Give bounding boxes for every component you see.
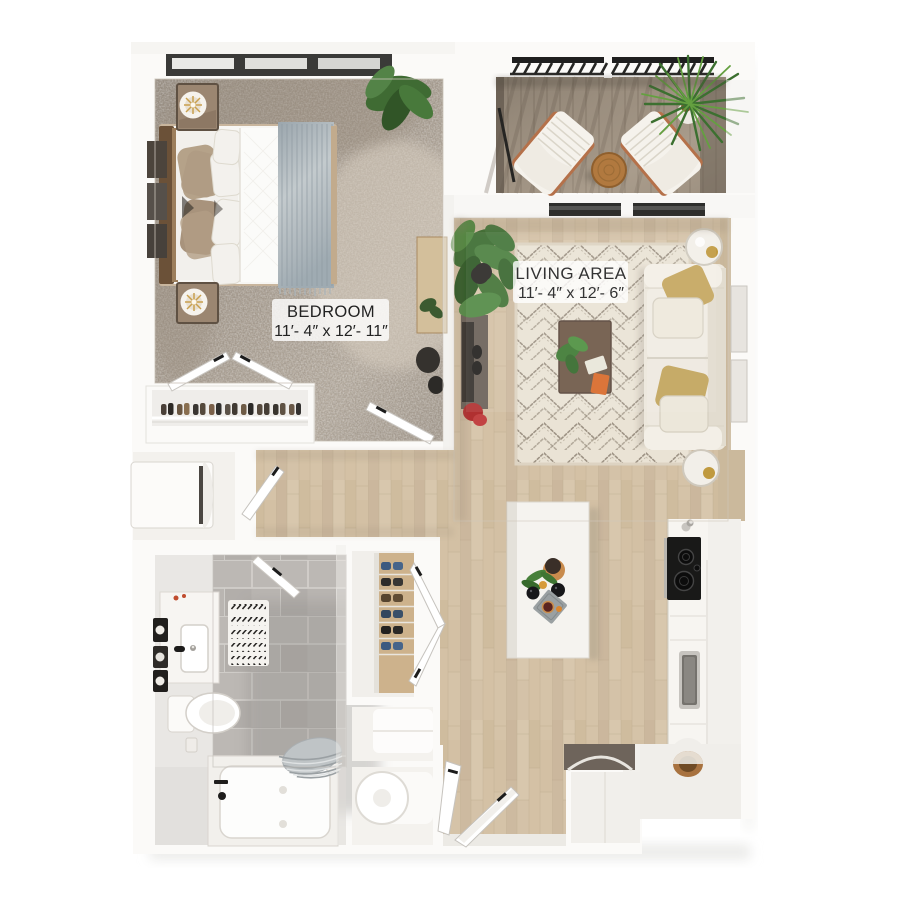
svg-text:BEDROOM: BEDROOM xyxy=(287,303,375,321)
svg-text:11′- 4″ x 12′- 11″: 11′- 4″ x 12′- 11″ xyxy=(274,323,388,340)
